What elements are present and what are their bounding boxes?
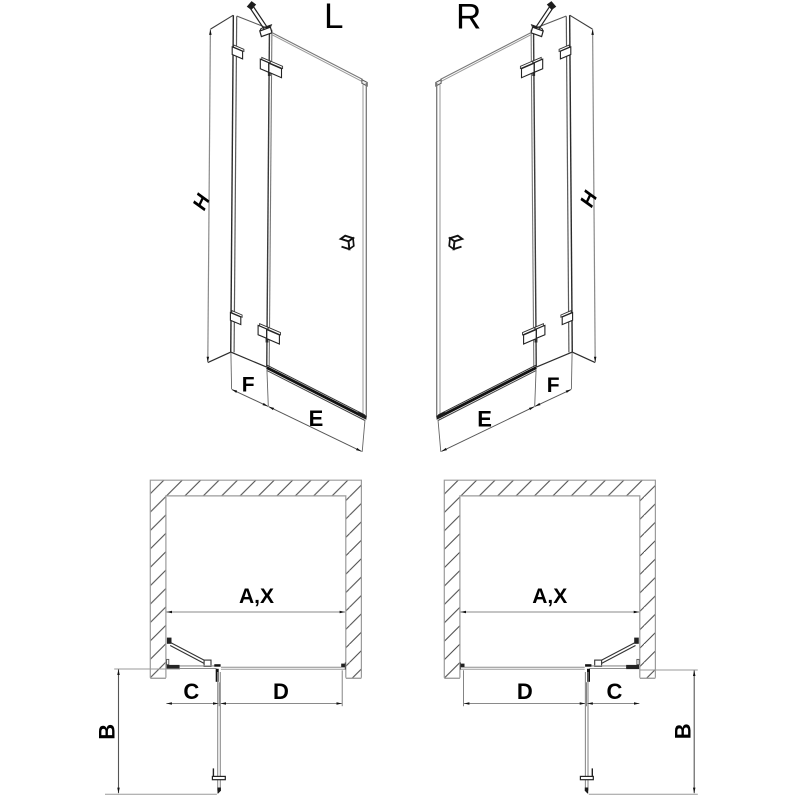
svg-text:E: E xyxy=(309,406,324,431)
svg-text:R: R xyxy=(456,0,481,36)
svg-text:D: D xyxy=(517,679,533,704)
svg-text:A,X: A,X xyxy=(239,585,274,608)
svg-text:E: E xyxy=(477,407,492,432)
svg-text:F: F xyxy=(547,374,560,397)
svg-text:F: F xyxy=(242,374,255,397)
svg-text:C: C xyxy=(183,679,199,704)
svg-text:D: D xyxy=(273,679,289,704)
svg-text:C: C xyxy=(606,679,622,704)
svg-text:L: L xyxy=(324,0,343,36)
svg-text:A,X: A,X xyxy=(532,585,567,608)
svg-text:B: B xyxy=(95,724,120,740)
svg-text:B: B xyxy=(670,723,695,739)
